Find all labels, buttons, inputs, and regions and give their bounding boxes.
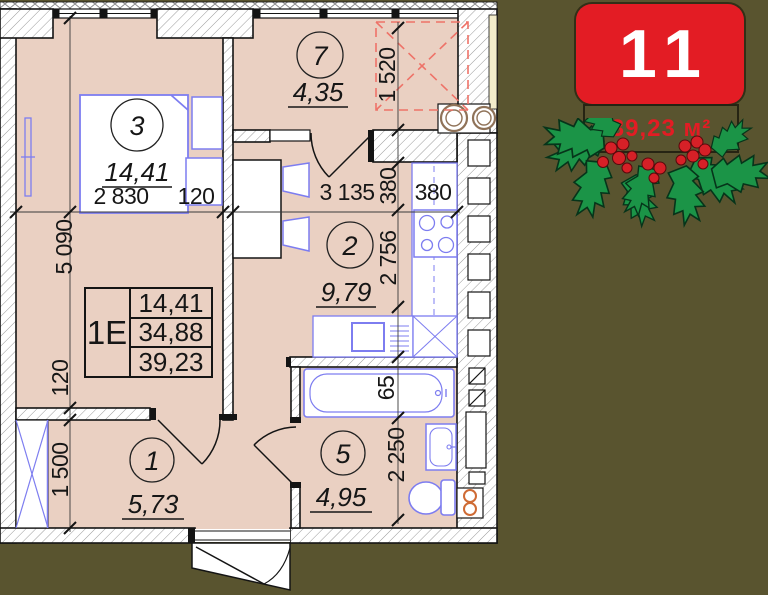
room-1-number: 1 — [144, 446, 159, 476]
dim-120-left: 120 — [47, 360, 73, 397]
dim-65: 65 — [373, 376, 399, 401]
loggia-strip — [489, 15, 497, 109]
room-2-number: 2 — [341, 231, 357, 261]
listing-card: 5 090 120 1 500 2 830 120 3 135 380 380 … — [0, 0, 768, 595]
room-3-number: 3 — [129, 111, 144, 141]
dim-380-b: 380 — [415, 179, 452, 205]
dim-120-top: 120 — [178, 183, 215, 209]
holly-decoration — [533, 118, 768, 240]
table-row-area: 34,88 — [138, 317, 203, 347]
washbasin — [426, 424, 456, 470]
riser-pipes — [457, 488, 483, 518]
unit-badge: 11 39,23 м² — [545, 2, 768, 242]
room-2-area: 9,79 — [321, 277, 372, 307]
room-7-number: 7 — [312, 41, 328, 71]
dim-1520: 1 520 — [374, 47, 400, 102]
room-1-area: 5,73 — [128, 489, 179, 519]
dim-5090: 5 090 — [51, 219, 77, 274]
entrance-sill — [195, 529, 290, 542]
toilet — [409, 480, 455, 515]
dim-380-a: 380 — [375, 168, 401, 205]
window-room7 — [253, 9, 470, 18]
entrance-door — [192, 543, 290, 590]
flat-type: 1E — [87, 314, 127, 351]
table-row-total: 39,23 — [138, 347, 203, 377]
floor-plan: 5 090 120 1 500 2 830 120 3 135 380 380 … — [0, 0, 500, 595]
dim-1500: 1 500 — [47, 442, 73, 497]
dim-3135: 3 135 — [319, 179, 374, 205]
facade-panels — [466, 140, 490, 484]
unit-number-plate: 11 — [576, 4, 744, 104]
wardrobe — [16, 420, 48, 528]
dim-2250: 2 250 — [383, 427, 409, 482]
room-5-number: 5 — [335, 439, 351, 469]
room-5-area: 4,95 — [316, 482, 367, 512]
room-3-area: 14,41 — [104, 157, 169, 187]
threshold — [270, 130, 310, 141]
unit-number: 11 — [609, 15, 711, 93]
room-7-area: 4,35 — [293, 77, 344, 107]
window-room3 — [53, 9, 157, 18]
kitchen-sink — [313, 316, 457, 357]
table-row-living: 14,41 — [138, 288, 203, 318]
dim-2756: 2 756 — [375, 230, 401, 285]
